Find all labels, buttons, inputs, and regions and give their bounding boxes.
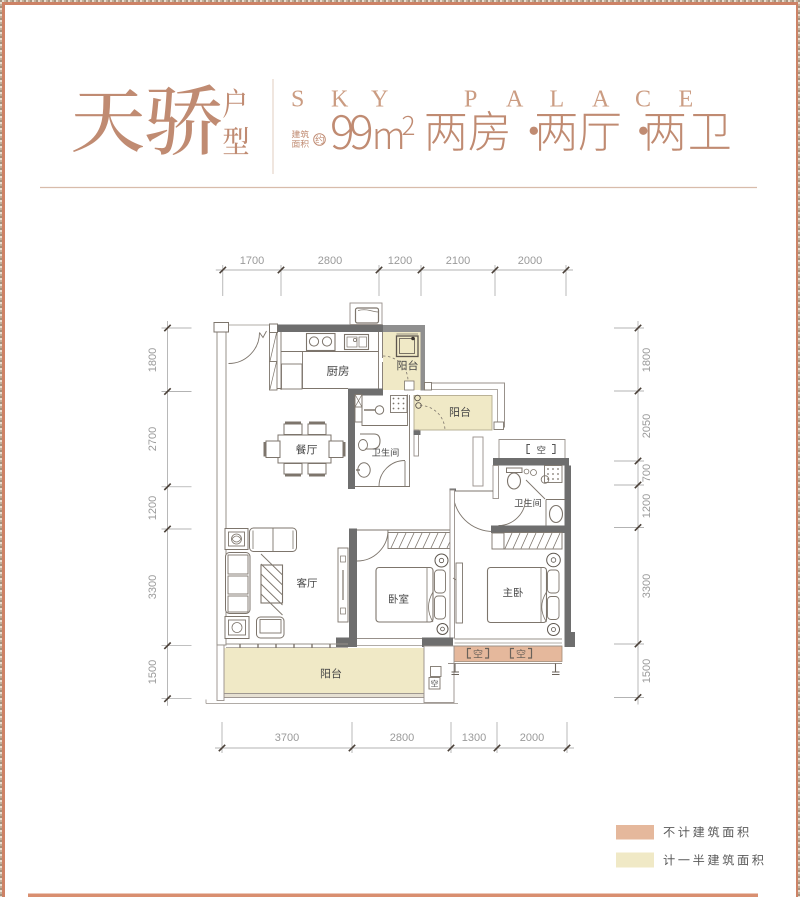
svg-text:L: L (550, 87, 565, 113)
svg-text:Y: Y (371, 87, 388, 113)
svg-text:1500: 1500 (641, 659, 653, 683)
svg-text:2100: 2100 (446, 255, 470, 267)
svg-text:2050: 2050 (641, 414, 653, 438)
svg-text:2800: 2800 (390, 732, 414, 744)
svg-text:2000: 2000 (518, 255, 542, 267)
svg-text:1800: 1800 (147, 348, 159, 372)
svg-text:A: A (592, 87, 610, 113)
svg-text:1800: 1800 (641, 348, 653, 372)
svg-text:1300: 1300 (462, 732, 486, 744)
svg-text:1200: 1200 (388, 255, 412, 267)
svg-text:700: 700 (641, 464, 653, 482)
svg-text:1700: 1700 (240, 255, 264, 267)
svg-text:2700: 2700 (147, 427, 159, 451)
svg-text:2000: 2000 (520, 732, 544, 744)
svg-text:3300: 3300 (147, 575, 159, 599)
svg-text:C: C (635, 87, 651, 113)
svg-text:S: S (291, 87, 304, 113)
svg-text:A: A (506, 87, 524, 113)
svg-text:1200: 1200 (147, 496, 159, 520)
svg-text:P: P (464, 87, 477, 113)
svg-text:2800: 2800 (318, 255, 342, 267)
svg-text:1500: 1500 (147, 660, 159, 684)
svg-text:K: K (331, 87, 349, 113)
svg-text:1200: 1200 (641, 494, 653, 518)
svg-text:E: E (679, 87, 694, 113)
svg-text:3300: 3300 (641, 574, 653, 598)
svg-text:3700: 3700 (275, 732, 299, 744)
